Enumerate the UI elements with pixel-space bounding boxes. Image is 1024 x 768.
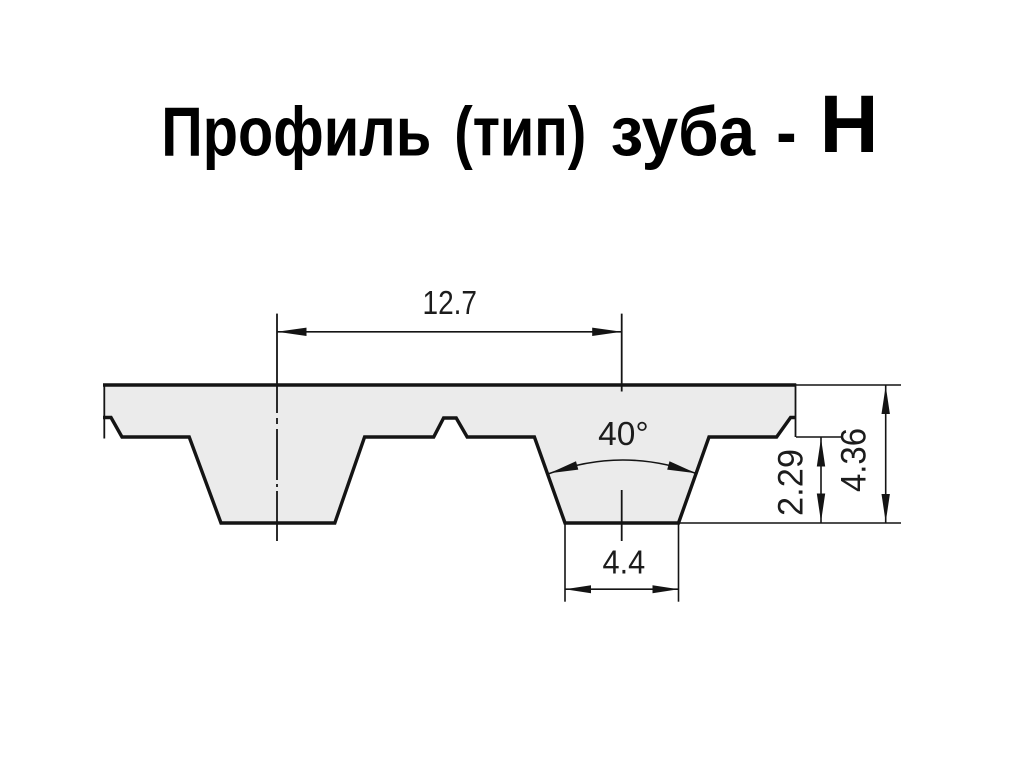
svg-text:4.4: 4.4 [603,544,646,581]
svg-text:зуба: зуба [611,92,756,170]
svg-text:-: - [776,93,796,171]
svg-text:2.29: 2.29 [772,449,811,516]
svg-text:4.36: 4.36 [835,428,874,492]
svg-text:12.7: 12.7 [423,284,478,321]
svg-text:Н: Н [820,79,879,170]
svg-text:(тип): (тип) [454,92,586,170]
svg-text:Профиль: Профиль [161,92,431,170]
svg-text:40°: 40° [598,415,649,452]
